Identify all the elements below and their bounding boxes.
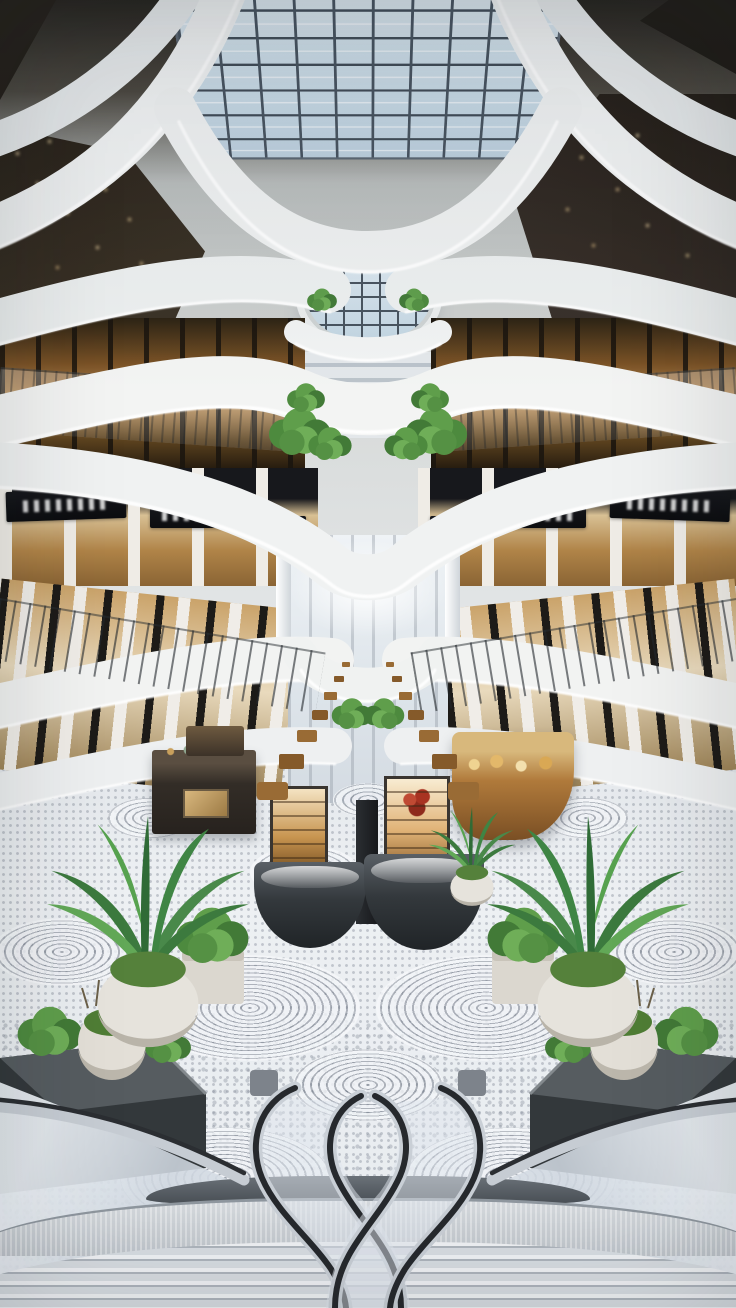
mall-atrium-photo <box>0 0 736 1308</box>
photo-vignette <box>0 0 736 1308</box>
